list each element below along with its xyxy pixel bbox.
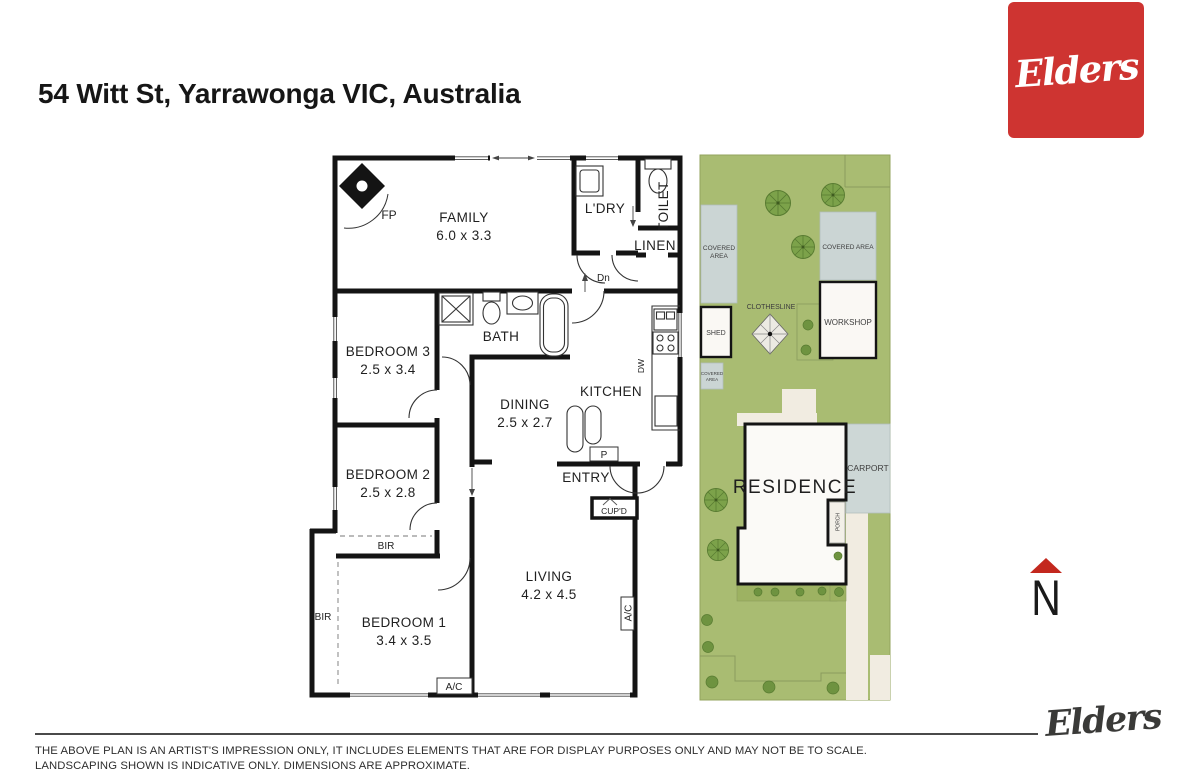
island-bench-symbol xyxy=(567,406,583,452)
elders-logo: Elders xyxy=(1008,2,1144,138)
cooktop-symbol xyxy=(653,332,678,354)
porch-label: PORCH xyxy=(836,513,842,531)
site-plan: COVERED AREA COVERED AREA COVERED AREA W… xyxy=(700,155,890,700)
pantry-label: P xyxy=(601,450,608,461)
dn-label: Dn xyxy=(597,273,610,284)
disclaimer-line2: LANDSCAPING SHOWN IS INDICATIVE ONLY. DI… xyxy=(35,760,470,772)
disclaimer-line1: THE ABOVE PLAN IS AN ARTIST'S IMPRESSION… xyxy=(35,745,867,757)
svg-text:AREA: AREA xyxy=(706,377,718,382)
ac-label: A/C xyxy=(624,605,635,622)
workshop-label: WORKSHOP xyxy=(824,318,872,327)
elders-script-text: Elders xyxy=(1044,696,1162,745)
svg-text:COVERED: COVERED xyxy=(701,371,724,376)
linen-label: LINEN xyxy=(634,238,676,253)
robe-door-lines xyxy=(338,536,432,688)
bedroom2-dims: 2.5 x 2.8 xyxy=(360,485,415,500)
elders-logo-text: Elders xyxy=(1013,44,1139,96)
carport-label: CARPORT xyxy=(847,463,888,473)
bedroom1-dims: 3.4 x 3.5 xyxy=(376,633,431,648)
living-label: LIVING xyxy=(526,569,573,584)
ldry-label: L'DRY xyxy=(585,201,625,216)
residence-label: RESIDENCE xyxy=(733,477,857,498)
page-title: 54 Witt St, Yarrawonga VIC, Australia xyxy=(38,78,521,110)
elders-script-logo: Elders xyxy=(1038,700,1168,741)
north-compass: N xyxy=(1020,558,1072,621)
shed-label: SHED xyxy=(706,330,725,337)
floorplan-page: 54 Witt St, Yarrawonga VIC, Australia El… xyxy=(0,0,1200,778)
bedroom1-label: BEDROOM 1 xyxy=(362,615,447,630)
dining-dims: 2.5 x 2.7 xyxy=(497,415,552,430)
bath-label: BATH xyxy=(483,329,520,344)
ac-label: A/C xyxy=(446,682,463,693)
bedroom3-dims: 2.5 x 3.4 xyxy=(360,362,415,377)
wc-symbol xyxy=(645,159,671,169)
footer-divider xyxy=(35,733,1038,735)
floor-and-site-plan: COVERED AREA COVERED AREA COVERED AREA W… xyxy=(290,145,900,720)
bir-label: BIR xyxy=(315,612,332,623)
cupd-label: CUP'D xyxy=(601,506,627,516)
fridge-symbol xyxy=(655,396,677,426)
covered-area-label: COVERED AREA xyxy=(822,244,874,251)
driveway xyxy=(846,513,868,700)
toilet-symbol xyxy=(483,292,500,301)
living-dims: 4.2 x 4.5 xyxy=(521,587,576,602)
dw-label: DW xyxy=(636,359,646,373)
kitchen-label: KITCHEN xyxy=(580,384,642,399)
floor-plan: FAMILY 6.0 x 3.3 L'DRY TOILET LINEN Dn F… xyxy=(310,155,683,697)
covered-area-label: AREA xyxy=(710,253,728,260)
covered-area-small xyxy=(701,363,723,389)
fp-label: FP xyxy=(381,208,396,222)
entry-label: ENTRY xyxy=(562,470,610,485)
toilet-label: TOILET xyxy=(656,181,671,230)
bath-fixtures xyxy=(439,292,568,356)
bedroom3-label: BEDROOM 3 xyxy=(346,344,431,359)
dining-label: DINING xyxy=(500,397,550,412)
kitchen-fixtures xyxy=(567,306,680,452)
covered-area-label: COVERED xyxy=(703,245,735,252)
clothesline-label: CLOTHESLINE xyxy=(747,304,796,311)
bedroom2-label: BEDROOM 2 xyxy=(346,467,431,482)
family-dims: 6.0 x 3.3 xyxy=(436,228,491,243)
family-label: FAMILY xyxy=(439,210,488,225)
north-label: N xyxy=(1025,575,1068,621)
bir-label: BIR xyxy=(378,541,395,552)
